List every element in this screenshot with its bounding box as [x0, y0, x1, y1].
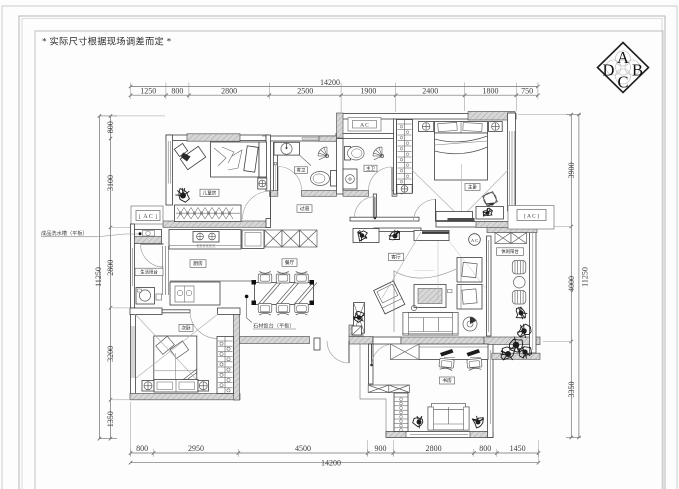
- svg-text:石材饭台（平板）: 石材饭台（平板）: [253, 322, 295, 330]
- svg-text:过道: 过道: [300, 205, 310, 212]
- svg-text:11250: 11250: [581, 267, 590, 287]
- svg-text:主卧: 主卧: [468, 184, 478, 191]
- svg-text:4500: 4500: [295, 444, 311, 453]
- svg-text:A C: A C: [360, 122, 369, 128]
- svg-text:次卧: 次卧: [181, 325, 191, 332]
- svg-text:客卫: 客卫: [297, 167, 306, 174]
- svg-text:4000: 4000: [567, 276, 576, 292]
- svg-text:2800: 2800: [106, 260, 115, 276]
- svg-text:ⵈⵈⵈⵈⵈⵈⵈⵈⵈⵈ: ⵈⵈⵈⵈⵈⵈⵈⵈⵈⵈ: [414, 269, 435, 273]
- svg-text:B: B: [632, 61, 643, 80]
- svg-text:3200: 3200: [106, 346, 115, 362]
- svg-text:800: 800: [479, 444, 491, 453]
- svg-text:800: 800: [171, 86, 183, 95]
- svg-text:A: A: [617, 48, 629, 67]
- svg-text:3350: 3350: [567, 382, 576, 398]
- svg-text:2500: 2500: [297, 86, 313, 95]
- svg-text:11250: 11250: [94, 267, 103, 287]
- svg-text:900: 900: [375, 444, 387, 453]
- svg-text:书房: 书房: [442, 377, 452, 384]
- svg-text:儿童房: 儿童房: [203, 189, 217, 196]
- svg-text:1900: 1900: [360, 86, 376, 95]
- svg-text:成品洗水槽（平板）: 成品洗水槽（平板）: [41, 229, 88, 237]
- svg-text:750: 750: [521, 86, 533, 95]
- svg-text:2800: 2800: [221, 86, 237, 95]
- svg-text:㧟㧟㧟㧟㧟㧟: 㧟㧟㧟㧟㧟㧟: [196, 243, 216, 248]
- svg-text:餐厅: 餐厅: [285, 259, 295, 266]
- svg-text:厨房: 厨房: [193, 260, 203, 267]
- svg-text:1350: 1350: [106, 411, 115, 427]
- svg-text:1800: 1800: [483, 86, 499, 95]
- svg-text:14200: 14200: [321, 459, 341, 468]
- svg-text:D: D: [603, 61, 615, 80]
- svg-text:2950: 2950: [188, 444, 204, 453]
- svg-text:生活阳台: 生活阳台: [140, 269, 158, 276]
- svg-text:3900: 3900: [567, 163, 576, 179]
- svg-text:14200: 14200: [320, 78, 340, 87]
- svg-text:客厅: 客厅: [391, 254, 401, 261]
- svg-text:[ A C ]: [ A C ]: [524, 214, 539, 220]
- svg-text:2400: 2400: [422, 86, 438, 95]
- svg-text:1250: 1250: [140, 86, 156, 95]
- svg-text:A C: A C: [143, 214, 153, 220]
- svg-text:主卫: 主卫: [366, 165, 375, 171]
- svg-text:1450: 1450: [510, 444, 526, 453]
- svg-text:3100: 3100: [106, 175, 115, 191]
- svg-text:2800: 2800: [426, 444, 442, 453]
- svg-text:800: 800: [106, 121, 115, 133]
- svg-text:A C: A C: [471, 238, 478, 243]
- svg-text:* 实际尺寸根据现场调差而定 *: * 实际尺寸根据现场调差而定 *: [42, 35, 172, 47]
- svg-text:C: C: [617, 73, 628, 92]
- svg-text:休闲阳台: 休闲阳台: [501, 248, 519, 255]
- svg-text:800: 800: [136, 444, 148, 453]
